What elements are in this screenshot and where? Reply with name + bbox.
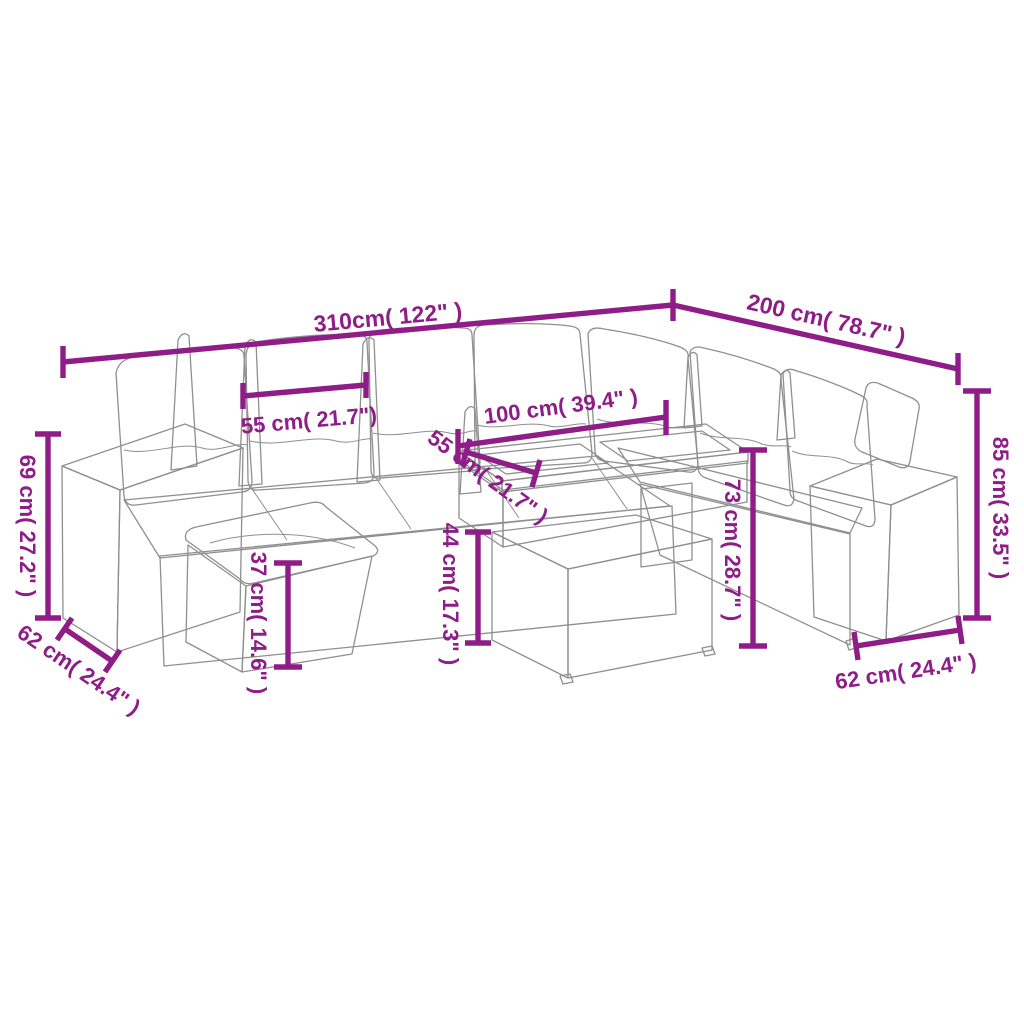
armrest-left [62,424,243,652]
dim-back-height-label: 85 cm( 33.5" ) [988,437,1013,580]
dim-table-lower-height-label: 44 cm( 17.3" ) [438,523,463,666]
dim-table-lower-height-line [465,532,491,643]
back-cushion-1 [116,347,252,505]
dim-arm-height-left-label: 69 cm( 27.2" ) [15,455,40,598]
ottoman [185,502,377,672]
dimension-diagram-canvas: 310cm( 122" ) 200 cm( 78.7" ) 55 cm( 21.… [0,0,1024,1024]
dim-arm-depth-left-label: 62 cm( 24.4" ) [13,619,145,719]
product-dimension-diagram-page: 310cm( 122" ) 200 cm( 78.7" ) 55 cm( 21.… [0,0,1024,1024]
armrest-right [810,459,959,650]
dim-ottoman-height-label: 37 cm( 14.6" ) [246,552,271,695]
dim-back-height-line [963,391,991,618]
dim-table-height-label: 73 cm( 28.7" ) [720,479,745,622]
armrest-pillow-right [855,382,919,467]
dim-back-cushion-width-label: 55 cm( 21.7") [240,402,378,439]
ottoman-cushion [185,502,377,584]
back-cushion-6 [783,369,875,526]
